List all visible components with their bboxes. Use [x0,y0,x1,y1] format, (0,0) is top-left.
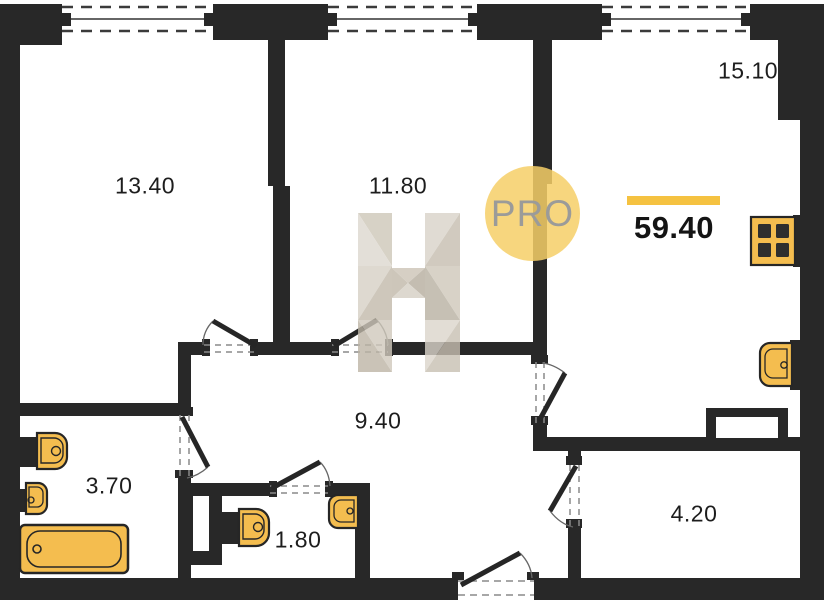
door-room-top-left [203,321,258,352]
window-3 [602,7,750,31]
windows [62,7,750,31]
door-entry-room [550,465,579,527]
room-area-label-hallway: 9.40 [355,408,402,435]
pro-logo-badge: PRO [485,166,580,261]
stove-icon [751,215,802,267]
door-entrance [458,553,534,595]
sink-icon [329,494,370,530]
room-area-label-top-middle: 11.80 [369,173,427,200]
room-area-label-top-right: 15.10 [718,58,778,85]
total-area-label: 59.40 [620,210,728,246]
sink-icon [760,340,802,390]
toilet-icon [222,509,269,546]
window-1 [62,7,213,31]
pro-logo-text: PRO [491,195,574,232]
window-2 [328,7,477,31]
toilet-icon [20,433,67,469]
total-area-accent-bar [627,196,720,205]
door-kitchen [536,362,565,424]
door-wc [270,462,330,493]
sink-icon [20,483,47,514]
door-bathroom [180,415,208,478]
room-area-label-entry: 4.20 [671,501,718,528]
room-area-label-bathroom: 3.70 [86,473,133,500]
room-area-label-wc: 1.80 [275,527,322,554]
bathtub-icon [20,525,128,573]
room-area-label-top-left: 13.40 [115,173,175,200]
floor-plan: PRO 59.40 13.40 11.80 15.10 9.40 3.70 1.… [0,0,824,600]
